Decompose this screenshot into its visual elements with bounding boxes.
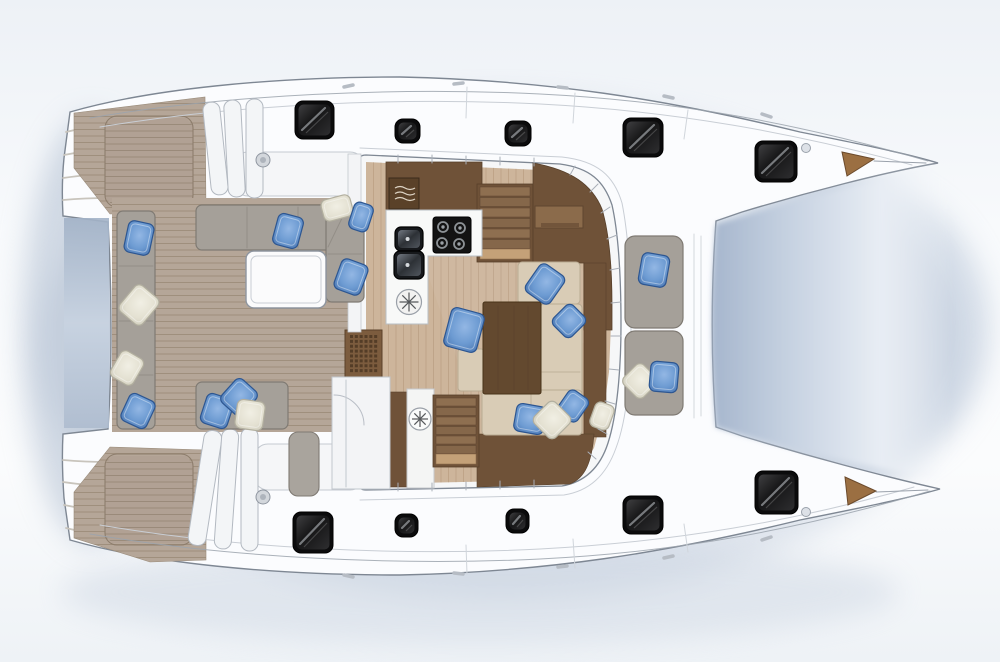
deck-plan-stage — [0, 0, 1000, 662]
deck-step-slat — [241, 428, 258, 551]
fridge-icon — [397, 290, 422, 315]
foredeck-pillow — [637, 252, 670, 288]
freezer-snowflake-icon — [409, 408, 431, 430]
deck-hatch — [755, 141, 797, 182]
console-top-line — [541, 223, 579, 227]
companionway-starboard-stairs — [433, 395, 479, 467]
stern-water — [64, 218, 109, 428]
catamaran-deck-plan — [0, 0, 1000, 662]
deck-step-slat — [246, 99, 263, 198]
deck-plan-scene — [0, 0, 1000, 662]
foredeck-pillow — [649, 361, 680, 393]
companionway-port-stairs — [477, 184, 533, 262]
door-mat — [345, 330, 382, 377]
deck-hatch — [506, 509, 529, 533]
windlass-starboard — [802, 508, 811, 517]
deck-hatch — [623, 496, 663, 534]
sink-lower — [394, 251, 424, 279]
aft-deck-panel-starboard — [105, 456, 193, 543]
deck-hatch — [505, 121, 531, 146]
stove — [433, 217, 471, 253]
cockpit-pillow — [234, 399, 266, 432]
sink-upper — [395, 227, 423, 251]
deck-hatch — [755, 471, 798, 514]
cockpit-winch-bottom — [256, 490, 270, 504]
dinette-seat-small — [458, 349, 484, 391]
deck-hatch — [293, 512, 333, 553]
aft-deck-panel-port — [105, 118, 193, 205]
cockpit-aft-seat — [289, 432, 319, 496]
dinette-bottom-band — [477, 434, 594, 487]
windlass-port — [802, 144, 811, 153]
galley-module — [332, 377, 390, 489]
freezer-unit — [407, 389, 434, 488]
cockpit-winch-top — [256, 153, 270, 167]
deck-hatch — [623, 118, 663, 157]
deck-hatch — [295, 101, 334, 139]
deck-hatch — [395, 119, 420, 143]
cockpit-table — [246, 251, 326, 308]
saloon-table — [483, 302, 541, 394]
deck-hatch — [395, 514, 418, 537]
